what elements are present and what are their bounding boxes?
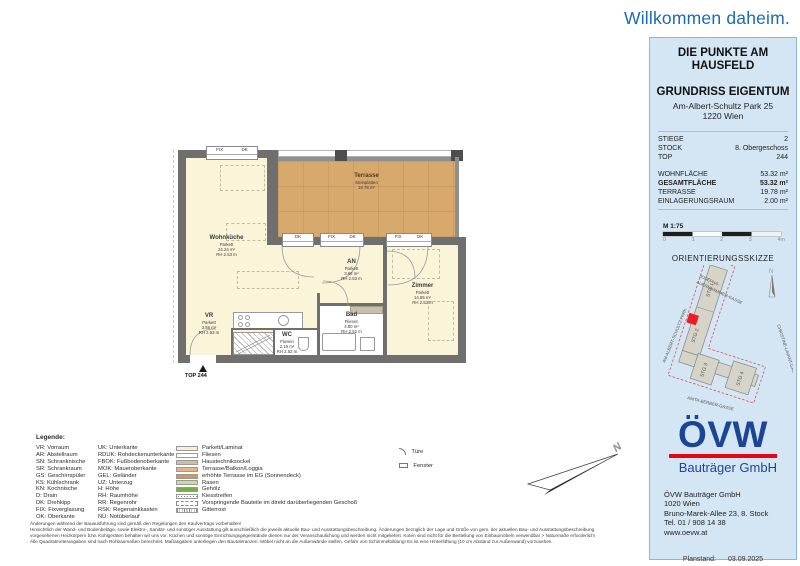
legend-abbr: GEL: Geländer [98,473,176,480]
legend-abbr: FBOK: Fußbodenoberkante [98,459,176,466]
legend-symbol-door: Türe [399,445,433,459]
legend-abbr: SR: Schrankraum [36,466,98,473]
welcome-slogan: Willkommen daheim. [624,8,790,29]
street-label: CHRISTINE-LAVANT-GASSE [776,324,793,380]
legend-abbr: D: Drain [36,493,98,500]
north-compass-icon: N [520,438,635,508]
window-label: FIX [395,234,402,240]
title-block: DIE PUNKTE AM HAUSFELD GRUNDRISS EIGENTU… [649,37,797,560]
scale-bar: M 1:75 01234m [663,223,796,243]
swatch-label: Vorspringende Bauteile im direkt darüber… [202,500,357,507]
disclaimer-line: Alle Quadratmeterangaben sind nach Rohba… [30,539,636,545]
company-address: ÖVW Bauträger GmbH1020 WienBruno-Marek-A… [664,490,796,538]
project-address: Am-Albert-Schultz Park 25 1220 Wien [650,101,796,121]
legend-title: Legende: [36,434,433,441]
window-label: FIX [216,147,223,153]
swatch-solid [176,446,198,451]
label-vr: VR Parkett 3.56 m² RH 2.53 m [186,313,232,336]
svg-text:N: N [769,269,773,275]
orientation-title: ORIENTIERUNGSSKIZZE [650,254,796,263]
window-fix-dk: FIX DK [386,233,432,247]
company-address-line: www.oevw.at [664,528,796,538]
window-fix-dk: FIX DK [206,146,258,160]
legend-abbr: RDUK: Rohdeckenunterkante [98,452,176,459]
legend-swatch-row: Terrasse/Balkon/Loggia [176,466,357,473]
planstand-label: Planstand: [683,556,716,563]
legend-swatch-row: Vorspringende Bauteile im direkt darüber… [176,500,357,507]
table-row: TERRASSE19.78 m² [658,188,788,197]
swatch-dashed [176,501,198,506]
plan-sheet: Willkommen daheim. [0,0,800,566]
legend-symbols: Türe Fenster [399,445,433,473]
swatch-solid [176,467,198,472]
legend-abbr: MOK: Maueroberkante [98,466,176,473]
legend-abbr: NÜ: Notüberlauf [98,514,176,521]
swatch-hatch [176,508,198,513]
legend-abbr: VR: Vorraum [36,445,98,452]
floorplan: FIX DK DK FIX DK FIX DK Terrasse Steinpl… [170,133,482,393]
table-row: EINLAGERUNGSRAUM2.00 m² [658,197,788,206]
company-address-line: Bruno-Marek-Allee 23, 8. Stock [664,509,796,519]
table-row: TOP244 [658,153,788,162]
swatch-label: Terrasse/Balkon/Loggia [202,466,263,473]
map-north-icon: N [769,269,775,297]
legend-abbr: UZ: Unterzug [98,480,176,487]
legend-swatch-row: Rasen [176,480,357,487]
label-bad: Bad Fliesen 4.80 m² RH 2.52 m [320,312,383,335]
swatch-solid [176,487,198,492]
svg-text:N: N [611,441,624,455]
window-label: DK [295,234,301,240]
legend-abbr: RH: Raumhöhe [98,493,176,500]
legend-abbr: SN: Schranknische [36,459,98,466]
label-wohnkueche: Wohnküche Parkett 24.24 m² RH 2.53 m [186,235,267,258]
swatch-solid [176,474,198,479]
legend-abbr: FIX: Fixverglasung [36,507,98,514]
project-title: DIE PUNKTE AM HAUSFELD [650,47,796,73]
swatch-label: Gitterrost [202,507,226,514]
street-label: ANITA-BERBER-GASSE [687,395,735,411]
scale-ticks: 01234m [663,237,785,243]
window-label: DK [242,147,248,153]
window-label: DK [350,234,356,240]
window-icon [399,463,408,468]
company-address-line: 1020 Wien [664,499,796,509]
swatch-solid [176,460,198,465]
swatch-label: Haustechniksockel [202,459,250,466]
door-icon [399,448,406,455]
table-row: WOHNFLÄCHE53.32 m² [658,170,788,179]
legend-abbr: H: Höhe [98,486,176,493]
swatch-label: Fliesen [202,452,221,459]
swatch-solid [176,480,198,485]
disclaimer-line: Hinsichtlich der Wand- und Bodenbeläge, … [30,527,636,533]
legend-symbol-window: Fenster [399,459,433,473]
label-terrasse: Terrasse Steinplatten 19.78 m² [278,173,455,190]
window-dk: DK [282,233,314,247]
label-an: AN Parkett 3.68 m² RH 2.53 m [320,259,383,282]
window-fix-dk: FIX DK [320,233,364,247]
scale-label: M 1:75 [663,223,796,230]
unit-info-table: STIEGE2 STOCK8. Obergeschoss TOP244 WOHN… [658,131,788,210]
legend: Legende: VR: VorraumAR: AbstellraumSN: S… [36,434,433,521]
legend-swatch-row: Parkett/Laminat [176,445,357,452]
legend-swatch-row: Kiesstreifen [176,493,357,500]
entrance-arrow-icon [199,365,207,372]
legend-abbr: KS: Kühlschrank [36,480,98,487]
logo-subtitle: Bauträger GmbH [669,460,777,475]
window-label: DK [417,234,423,240]
legend-abbr: KN: Kochnische [36,486,98,493]
legend-abbreviations-col1: VR: VorraumAR: AbstellraumSN: Schranknis… [36,445,98,521]
logo-text: ÖVW [669,417,777,453]
company-address-line: ÖVW Bauträger GmbH [664,490,796,500]
plan-type: GRUNDRISS EIGENTUM [650,86,796,98]
swatch-solid [176,453,198,458]
legend-abbr: AR: Abstellraum [36,452,98,459]
disclaimer-text: Änderungen während der Bauausführung sin… [30,521,636,545]
swatch-dots [176,494,198,499]
swatch-label: Gehölz [202,486,220,493]
label-wc: WC Fliesen 2.19 m² RH 2.52 m [275,332,299,355]
legend-abbr: UK: Unterkante [98,445,176,452]
orientation-sketch: STG 1 STG 2 STG 3 STG 4 JOSEPHA- AUERNHA… [653,265,793,413]
legend-abbr: RR: Regenrohr [98,500,176,507]
legend-swatches: Parkett/LaminatFliesenHaustechniksockelT… [176,445,357,514]
legend-swatch-row: Fliesen [176,452,357,459]
legend-abbr: DK: Drehkipp [36,500,98,507]
legend-abbr: GS: Geschirrspüler [36,473,98,480]
legend-abbreviations-col2: UK: UnterkanteRDUK: RohdeckenunterkanteF… [98,445,176,521]
legend-swatch-row: Haustechniksockel [176,459,357,466]
swatch-label: Parkett/Laminat [202,445,243,452]
swatch-label: erhöhte Terrasse im EG (Sonnendeck) [202,473,301,480]
disclaimer-line: vorgesehenen Heizkörpern bzw. Kühlgeräte… [30,533,636,539]
label-zimmer: Zimmer Parkett 14.85 m² RH 2.53 m [387,283,458,306]
legend-swatch-row: Gitterrost [176,507,357,514]
window-label: FIX [328,234,335,240]
planstand-date: 03.09.2025 [728,556,763,563]
company-logo: ÖVW Bauträger GmbH [669,417,777,475]
legend-abbr: OK: Oberkante [36,514,98,521]
planstand: Planstand: 03.09.2025 [650,556,796,563]
table-row: STIEGE2 [658,135,788,144]
swatch-label: Rasen [202,480,219,487]
legend-swatch-row: erhöhte Terrasse im EG (Sonnendeck) [176,473,357,480]
swatch-label: Kiesstreifen [202,493,232,500]
unit-marker: TOP 244 [185,373,207,379]
company-address-line: Tel. 01 / 908 14 38 [664,518,796,528]
scale-bar-graphic [663,232,781,236]
table-row-total: GESAMTFLÄCHE53.32 m² [658,179,788,188]
legend-swatch-row: Gehölz [176,486,357,493]
table-row: STOCK8. Obergeschoss [658,144,788,153]
